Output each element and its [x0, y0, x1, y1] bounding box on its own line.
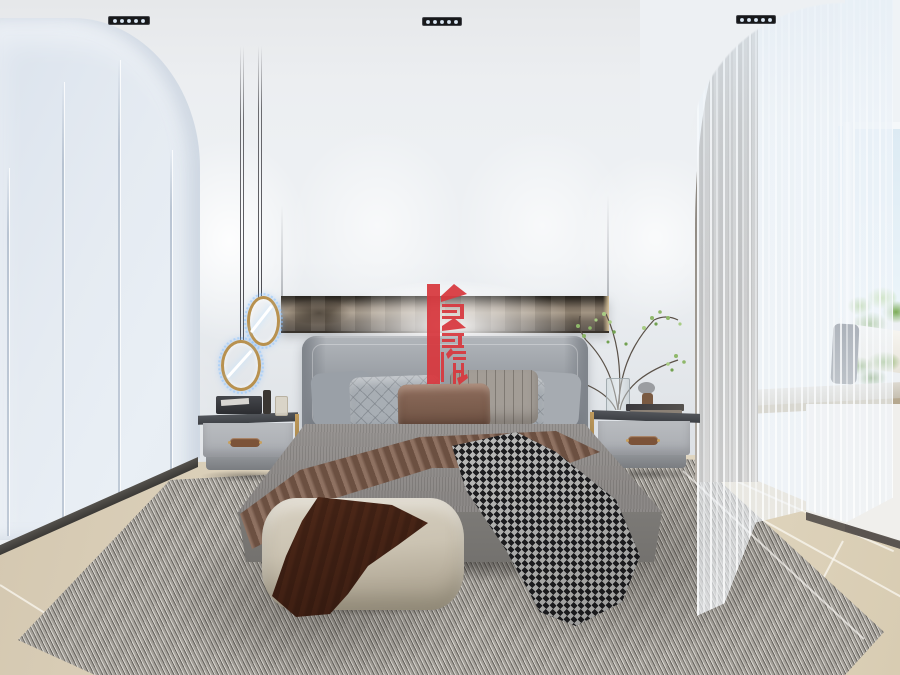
pouf — [258, 488, 470, 622]
red-watermark-logo — [427, 282, 469, 386]
curved-ceiling-cove — [640, 0, 845, 160]
bedroom-render: 鑫耀 — [0, 0, 900, 675]
wardrobe-panel-line — [118, 60, 120, 516]
wardrobe-panel-line — [7, 168, 9, 536]
wardrobe-panel-line — [62, 82, 64, 538]
wardrobe-panel-line — [170, 150, 172, 474]
ceiling-spotlight — [422, 17, 462, 26]
ceiling-spotlight — [736, 15, 776, 24]
pendant-cord — [258, 46, 259, 298]
pillow-brown-lumbar — [398, 383, 491, 431]
wardrobe — [0, 18, 200, 540]
pendant-cord — [261, 46, 262, 296]
ceiling-spotlight — [108, 16, 150, 25]
